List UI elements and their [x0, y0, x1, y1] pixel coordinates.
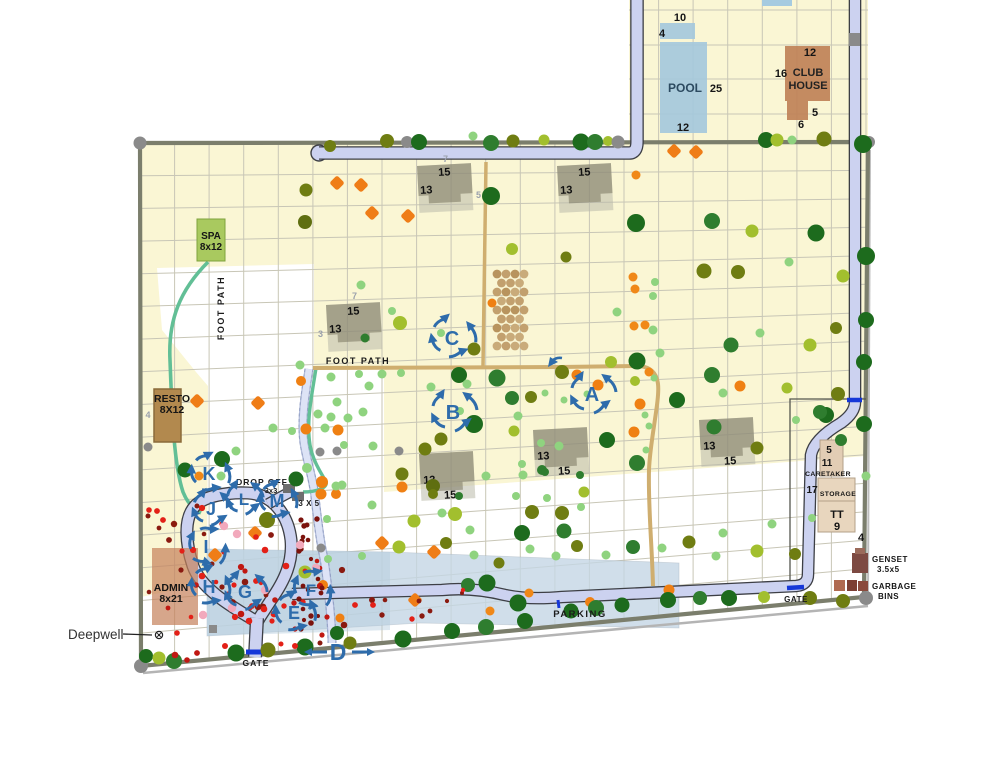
svg-text:CLUB: CLUB — [793, 67, 824, 79]
svg-text:B: B — [446, 402, 460, 424]
svg-text:TT: TT — [830, 509, 844, 521]
svg-text:5: 5 — [826, 445, 832, 456]
svg-text:GATE: GATE — [243, 658, 270, 668]
svg-text:15: 15 — [578, 166, 591, 179]
svg-text:4: 4 — [659, 28, 666, 40]
svg-text:11: 11 — [822, 458, 833, 469]
svg-text:4: 4 — [858, 532, 865, 544]
svg-text:12: 12 — [677, 122, 689, 134]
svg-text:BINS: BINS — [878, 592, 899, 601]
svg-text:4: 4 — [145, 410, 150, 420]
svg-text:3: 3 — [318, 329, 323, 339]
svg-text:HOUSE: HOUSE — [788, 80, 827, 92]
svg-text:PARKING: PARKING — [553, 609, 607, 620]
svg-text:GARBAGE: GARBAGE — [872, 582, 917, 591]
svg-text:C: C — [445, 328, 459, 350]
svg-text:GENSET: GENSET — [872, 555, 908, 564]
svg-text:8X12: 8X12 — [160, 404, 185, 416]
svg-text:8x12: 8x12 — [200, 242, 223, 253]
svg-text:5: 5 — [476, 190, 481, 200]
svg-text:13: 13 — [329, 323, 342, 336]
svg-text:H: H — [203, 577, 216, 597]
svg-text:5: 5 — [812, 107, 818, 119]
svg-text:8x21: 8x21 — [159, 593, 183, 605]
svg-text:3 X 5: 3 X 5 — [298, 499, 319, 508]
svg-text:STORAGE: STORAGE — [820, 491, 856, 498]
svg-text:9: 9 — [834, 521, 840, 533]
svg-text:13: 13 — [703, 440, 716, 453]
svg-text:16: 16 — [775, 68, 787, 80]
svg-text:7: 7 — [443, 154, 448, 164]
svg-text:15: 15 — [444, 489, 457, 502]
svg-text:17: 17 — [806, 485, 818, 496]
svg-text:J: J — [206, 499, 216, 519]
svg-text:K: K — [203, 464, 216, 484]
svg-text:FOOT PATH: FOOT PATH — [216, 276, 226, 340]
svg-text:15: 15 — [347, 305, 360, 318]
svg-text:POOL: POOL — [668, 81, 702, 95]
svg-text:M: M — [270, 491, 285, 511]
svg-text:15: 15 — [438, 166, 451, 179]
svg-text:G: G — [238, 582, 252, 602]
svg-text:10: 10 — [674, 12, 686, 24]
svg-text:6: 6 — [798, 119, 804, 131]
svg-text:E: E — [288, 603, 300, 623]
svg-text:3.5x5: 3.5x5 — [877, 565, 900, 574]
svg-text:I: I — [203, 537, 208, 557]
svg-text:DROP OFF: DROP OFF — [236, 477, 288, 487]
svg-text:13: 13 — [560, 184, 573, 197]
svg-text:A: A — [585, 384, 599, 406]
svg-text:15: 15 — [558, 465, 571, 478]
svg-text:Deepwell: Deepwell — [68, 627, 124, 642]
svg-text:FOOT PATH: FOOT PATH — [326, 356, 390, 366]
svg-text:L: L — [239, 490, 249, 509]
svg-text:SPA: SPA — [201, 231, 221, 242]
svg-text:25: 25 — [710, 83, 722, 95]
svg-text:F: F — [306, 581, 316, 600]
svg-text:CARETAKER: CARETAKER — [805, 471, 851, 478]
svg-text:13: 13 — [420, 184, 433, 197]
svg-text:13: 13 — [537, 450, 550, 463]
svg-text:D: D — [330, 639, 347, 665]
svg-text:15: 15 — [724, 455, 737, 468]
svg-text:12: 12 — [804, 47, 816, 59]
svg-text:GATE: GATE — [784, 595, 808, 604]
svg-text:7: 7 — [352, 291, 357, 301]
